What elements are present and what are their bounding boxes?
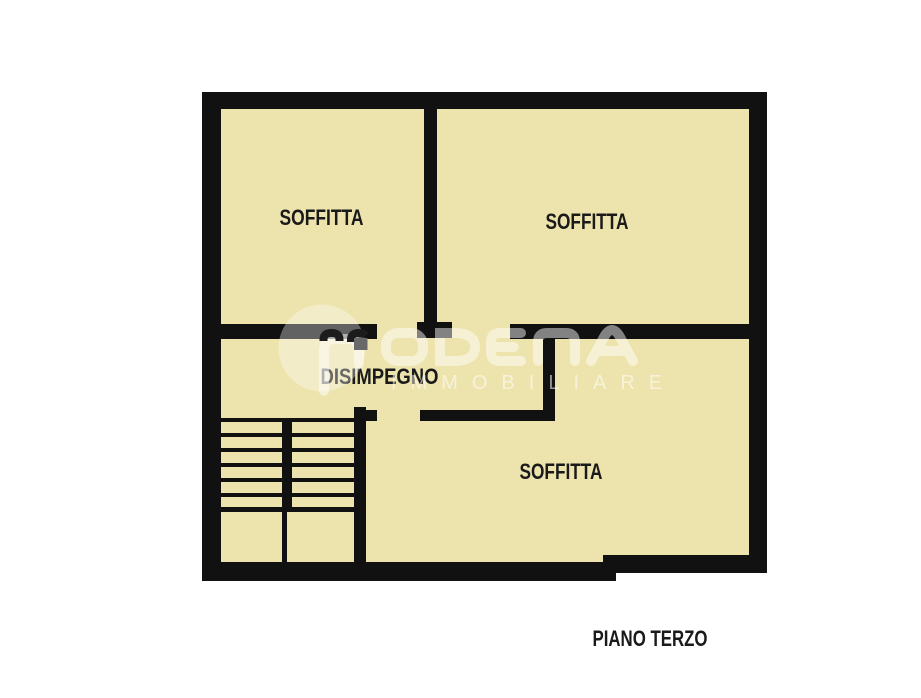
svg-text:SOFFITTA: SOFFITTA — [280, 205, 364, 230]
svg-text:IMMOBILIARE: IMMOBILIARE — [391, 372, 676, 394]
svg-text:SOFFITTA: SOFFITTA — [546, 209, 629, 234]
svg-text:PIANO TERZO: PIANO TERZO — [593, 626, 708, 651]
svg-text:SOFFITTA: SOFFITTA — [520, 459, 603, 484]
